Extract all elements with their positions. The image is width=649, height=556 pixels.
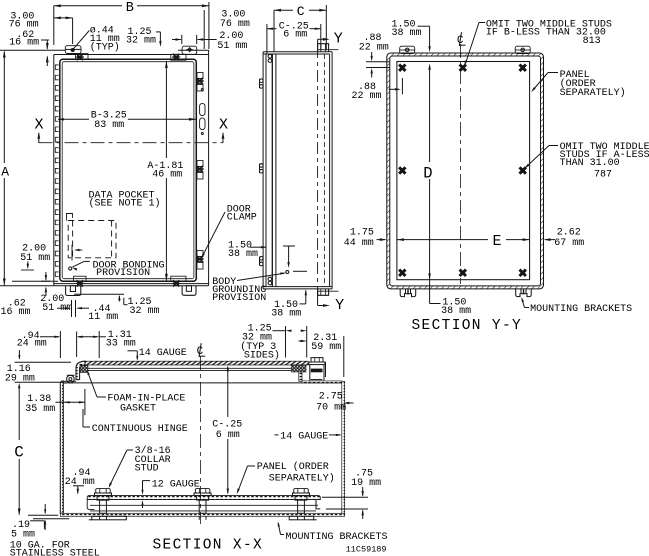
svg-text:(TYP): (TYP) — [90, 42, 120, 54]
svg-text:(SEE NOTE 1): (SEE NOTE 1) — [89, 198, 161, 210]
svg-text:44 mm: 44 mm — [344, 238, 374, 249]
svg-text:38 mm: 38 mm — [392, 28, 422, 39]
svg-text:32 mm: 32 mm — [130, 306, 160, 317]
svg-text:14 GAUGE: 14 GAUGE — [280, 432, 328, 443]
svg-text:SECTION Y-Y: SECTION Y-Y — [412, 318, 523, 334]
svg-text:33 mm: 33 mm — [106, 339, 136, 350]
svg-text:X: X — [35, 117, 44, 134]
svg-text:STUD: STUD — [135, 464, 159, 475]
svg-text:SIDES): SIDES) — [244, 350, 280, 362]
svg-text:2.75: 2.75 — [319, 392, 343, 403]
svg-text:1.75: 1.75 — [350, 228, 374, 239]
svg-text:PANEL (ORDER: PANEL (ORDER — [257, 461, 329, 473]
svg-text:SECTION X-X: SECTION X-X — [153, 538, 264, 554]
svg-text:813: 813 — [583, 36, 601, 47]
svg-text:14 GAUGE: 14 GAUGE — [139, 348, 187, 359]
svg-text:59 mm: 59 mm — [311, 342, 341, 353]
svg-text:E: E — [493, 233, 502, 250]
svg-text:X: X — [219, 117, 228, 134]
svg-text:76 mm: 76 mm — [220, 19, 250, 30]
svg-text:51 mm: 51 mm — [217, 41, 247, 52]
svg-text:38 mm: 38 mm — [441, 306, 471, 317]
svg-text:35 mm: 35 mm — [25, 404, 55, 415]
svg-text:SEPARATELY): SEPARATELY) — [560, 87, 626, 99]
svg-text:12 GAUGE: 12 GAUGE — [152, 480, 200, 491]
svg-text:MOUNTING BRACKETS: MOUNTING BRACKETS — [530, 304, 632, 315]
svg-text:C: C — [14, 444, 24, 462]
svg-text:B: B — [126, 1, 134, 16]
svg-text:22 mm: 22 mm — [359, 42, 389, 53]
svg-text:C: C — [297, 4, 305, 19]
svg-text:Y: Y — [334, 31, 343, 48]
svg-text:787: 787 — [594, 170, 612, 181]
svg-text:GASKET: GASKET — [120, 404, 156, 415]
svg-text:51 mm: 51 mm — [20, 253, 50, 264]
svg-text:CONTINUOUS HINGE: CONTINUOUS HINGE — [92, 424, 188, 435]
svg-text:76 mm: 76 mm — [9, 20, 39, 31]
svg-text:11 mm: 11 mm — [88, 312, 118, 323]
svg-text:83 mm: 83 mm — [94, 120, 124, 131]
svg-text:22 mm: 22 mm — [352, 91, 382, 102]
svg-text:PROVISION: PROVISION — [212, 293, 266, 304]
svg-text:6 mm: 6 mm — [283, 29, 307, 40]
svg-text:11C59189: 11C59189 — [346, 544, 387, 554]
svg-text:2.62: 2.62 — [557, 228, 581, 239]
svg-text:5 mm: 5 mm — [11, 530, 35, 541]
svg-text:Y: Y — [335, 297, 344, 314]
svg-text:24 mm: 24 mm — [17, 339, 47, 350]
svg-text:38 mm: 38 mm — [228, 249, 258, 260]
svg-text:SEPARATELY): SEPARATELY) — [269, 473, 335, 485]
svg-text:STAINLESS STEEL: STAINLESS STEEL — [10, 549, 100, 556]
svg-text:MOUNTING BRACKETS: MOUNTING BRACKETS — [286, 532, 388, 543]
svg-text:PROVISION: PROVISION — [96, 268, 150, 279]
svg-text:29 mm: 29 mm — [5, 374, 35, 385]
svg-text:70 mm: 70 mm — [316, 403, 346, 414]
svg-text:46 mm: 46 mm — [152, 170, 182, 181]
svg-text:38 mm: 38 mm — [271, 309, 301, 320]
svg-text:C-.25: C-.25 — [212, 420, 242, 431]
svg-text:19 mm: 19 mm — [351, 478, 381, 489]
svg-text:THAN 31.00: THAN 31.00 — [560, 158, 620, 169]
svg-text:CLAMP: CLAMP — [227, 213, 257, 224]
svg-text:A: A — [1, 165, 9, 180]
svg-text:16 mm: 16 mm — [1, 307, 31, 318]
svg-text:D: D — [423, 165, 432, 183]
svg-text:67 mm: 67 mm — [554, 238, 584, 249]
svg-text:32 mm: 32 mm — [126, 36, 156, 47]
svg-text:16 mm: 16 mm — [9, 38, 39, 49]
